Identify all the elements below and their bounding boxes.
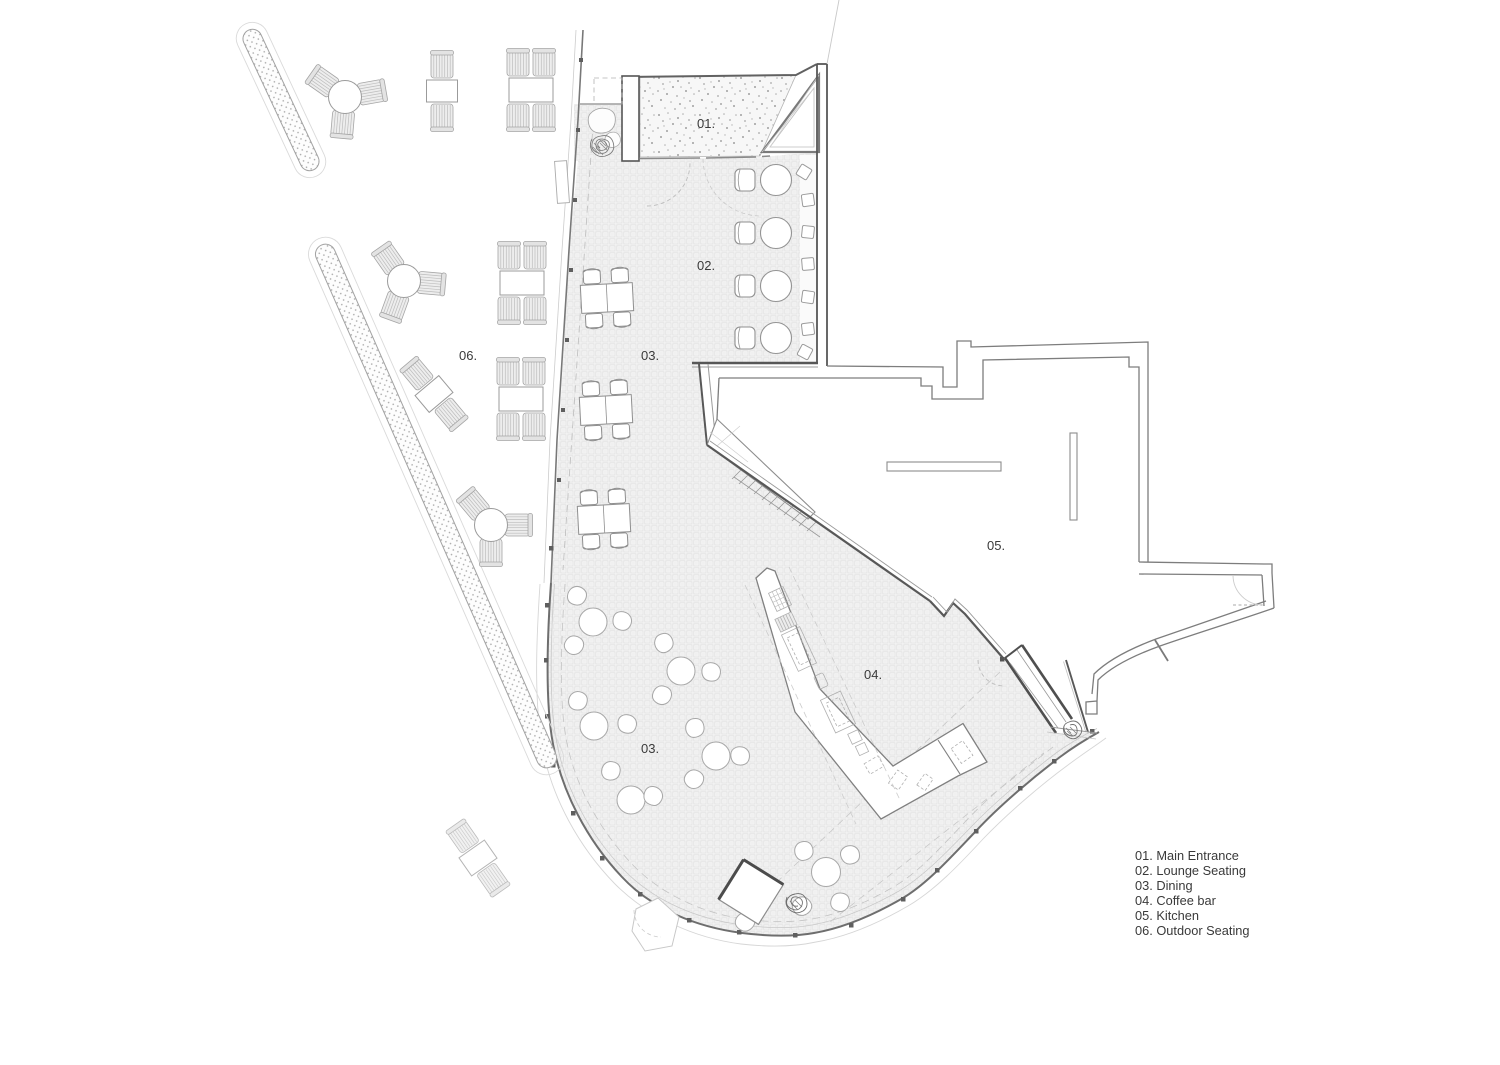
svg-text:03.: 03. [641,741,659,756]
svg-text:03. Dining: 03. Dining [1135,878,1193,893]
svg-text:01.: 01. [697,116,715,131]
svg-text:01. Main Entrance: 01. Main Entrance [1135,848,1239,863]
svg-text:04.: 04. [864,667,882,682]
svg-text:06. Outdoor Seating: 06. Outdoor Seating [1135,923,1250,938]
svg-text:06.: 06. [459,348,477,363]
svg-text:03.: 03. [641,348,659,363]
svg-text:05.: 05. [987,538,1005,553]
svg-text:02. Lounge Seating: 02. Lounge Seating [1135,863,1246,878]
svg-text:04. Coffee bar: 04. Coffee bar [1135,893,1217,908]
svg-text:05. Kitchen: 05. Kitchen [1135,908,1199,923]
svg-text:02.: 02. [697,258,715,273]
